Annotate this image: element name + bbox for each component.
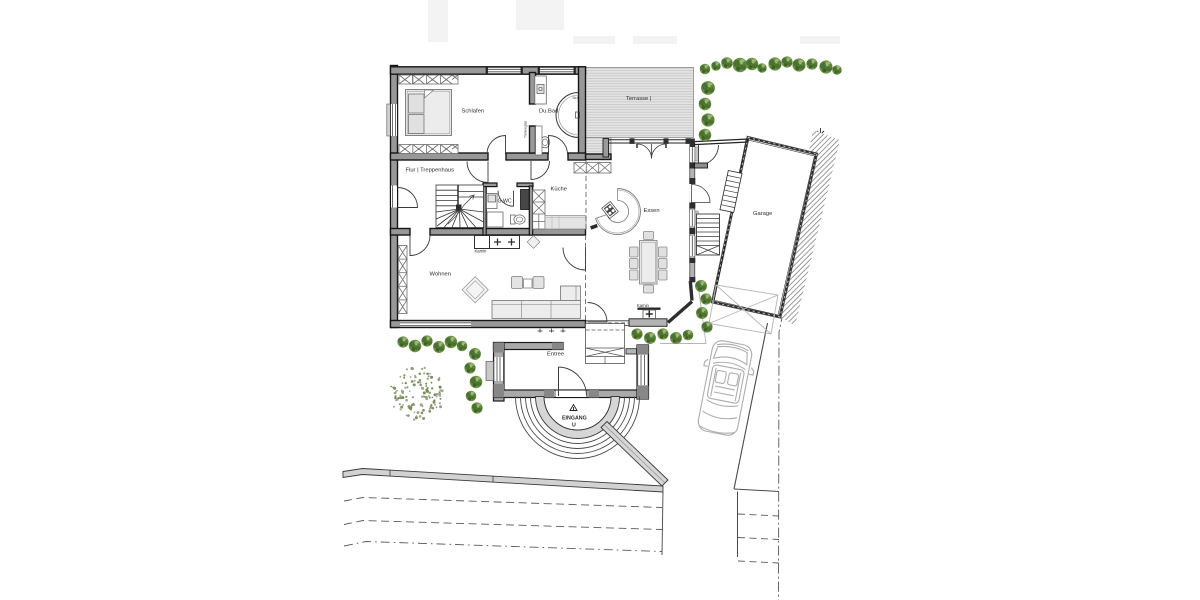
svg-text:Kamin: Kamin <box>475 249 488 254</box>
svg-text:EINGANG: EINGANG <box>562 416 587 422</box>
svg-text:Essen: Essen <box>644 208 660 214</box>
svg-text:Du.Bad: Du.Bad <box>539 109 558 115</box>
svg-text:Wohnen: Wohnen <box>430 272 452 278</box>
svg-text:Trennw.glas: Trennw.glas <box>524 121 528 138</box>
svg-text:Kamin: Kamin <box>637 303 650 308</box>
svg-text:Garage: Garage <box>753 211 772 217</box>
svg-text:Flur | Treppenhaus: Flur | Treppenhaus <box>406 168 455 174</box>
svg-text:U: U <box>572 423 576 429</box>
svg-text:Küche: Küche <box>551 187 567 193</box>
svg-text:Entree: Entree <box>547 352 564 358</box>
svg-text:Schlafen: Schlafen <box>462 109 485 115</box>
svg-text:Terrasse |: Terrasse | <box>626 96 651 102</box>
